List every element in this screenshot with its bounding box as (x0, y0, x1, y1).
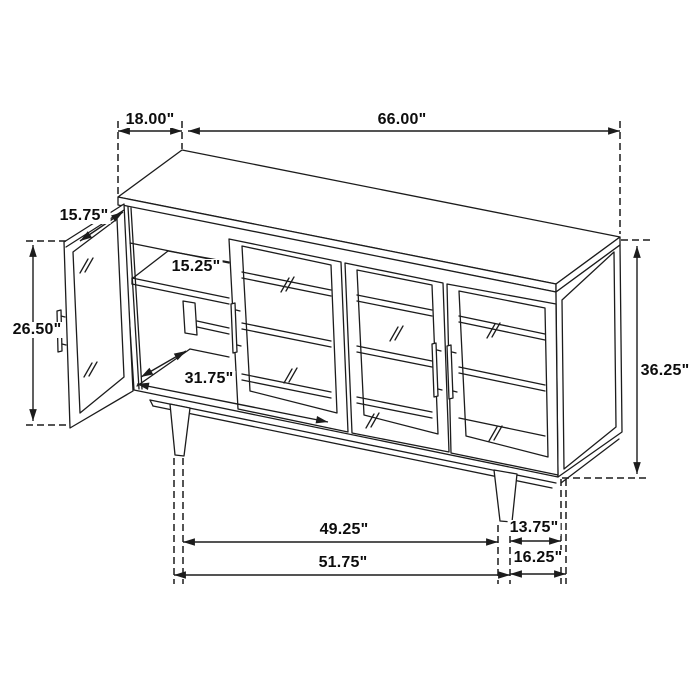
dim-label-door-width: 15.75" (58, 208, 111, 224)
glass-door-2 (229, 239, 348, 432)
dim-label-base-overhang: 16.25" (512, 550, 565, 566)
dimension-diagram: 18.00" 66.00" 15.75" 26.50" 15.25" 31.75… (0, 0, 700, 700)
dim-label-height: 36.25" (639, 363, 692, 379)
dim-label-door-height: 26.50" (11, 322, 64, 338)
dim-label-depth: 18.00" (124, 112, 177, 128)
glass-door-4 (447, 284, 558, 475)
dim-label-width: 66.00" (376, 112, 429, 128)
dim-label-leg-inset: 13.75" (508, 520, 561, 536)
cabinet-body (57, 150, 622, 522)
glass-door-3 (345, 263, 449, 452)
dim-label-legs-outer: 51.75" (317, 555, 370, 571)
leg-front-left (170, 404, 190, 456)
leg-front-right (494, 470, 517, 522)
interior-divider (183, 301, 197, 335)
dim-label-legs-inner: 49.25" (318, 522, 371, 538)
dim-label-shelf-depth: 15.25" (170, 259, 223, 275)
dim-label-interior-width: 31.75" (183, 371, 236, 387)
cabinet-line-drawing (0, 0, 700, 700)
